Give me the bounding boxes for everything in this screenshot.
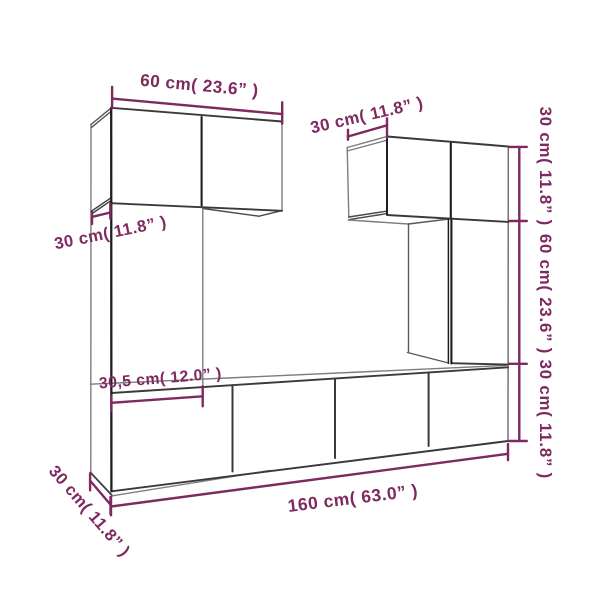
svg-text:160 cm( 63.0” ): 160 cm( 63.0” ) [287, 480, 420, 516]
svg-text:60 cm( 23.6” ): 60 cm( 23.6” ) [139, 70, 259, 101]
svg-text:30 cm( 11.8” ): 30 cm( 11.8” ) [536, 360, 555, 479]
svg-text:30 cm( 11.8” ): 30 cm( 11.8” ) [536, 107, 555, 226]
svg-text:60 cm( 23.6” ): 60 cm( 23.6” ) [536, 234, 555, 354]
